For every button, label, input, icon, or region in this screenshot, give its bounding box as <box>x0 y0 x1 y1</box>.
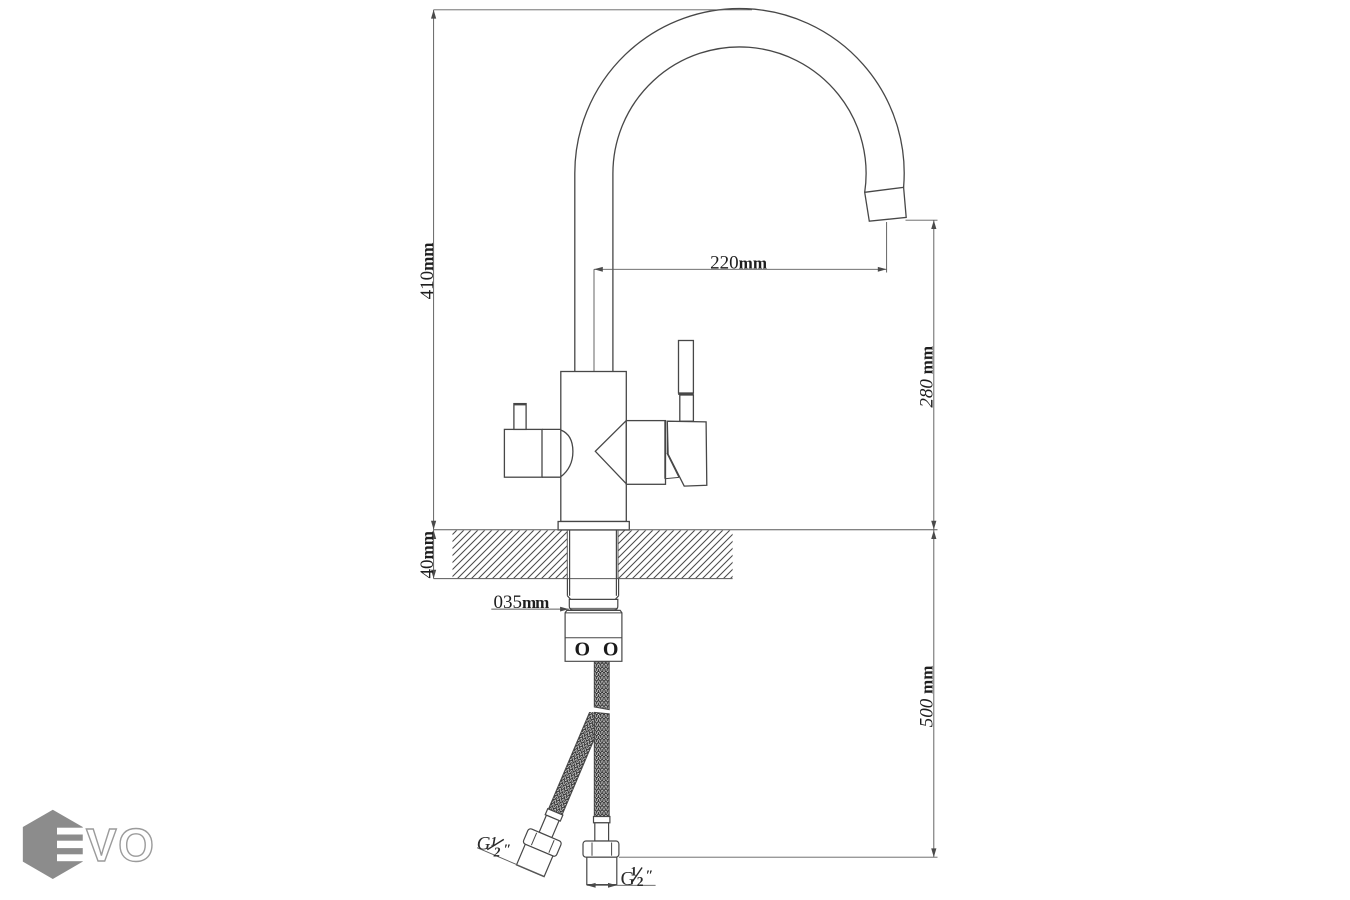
svg-text:410mm: 410mm <box>417 243 438 300</box>
svg-text:2: 2 <box>493 845 501 860</box>
svg-text:G: G <box>477 833 491 854</box>
svg-text:220mm: 220mm <box>710 252 767 273</box>
svg-text:40mm: 40mm <box>417 531 438 578</box>
svg-text:VO: VO <box>86 819 155 871</box>
svg-text:035mm: 035mm <box>494 592 550 613</box>
svg-text:″: ″ <box>646 869 654 884</box>
svg-text:O: O <box>603 638 619 660</box>
svg-text:2: 2 <box>637 874 644 889</box>
svg-text:O: O <box>575 638 591 660</box>
svg-text:500 mm: 500 mm <box>917 666 938 728</box>
svg-text:280 mm: 280 mm <box>917 346 938 408</box>
svg-text:″: ″ <box>504 843 512 858</box>
